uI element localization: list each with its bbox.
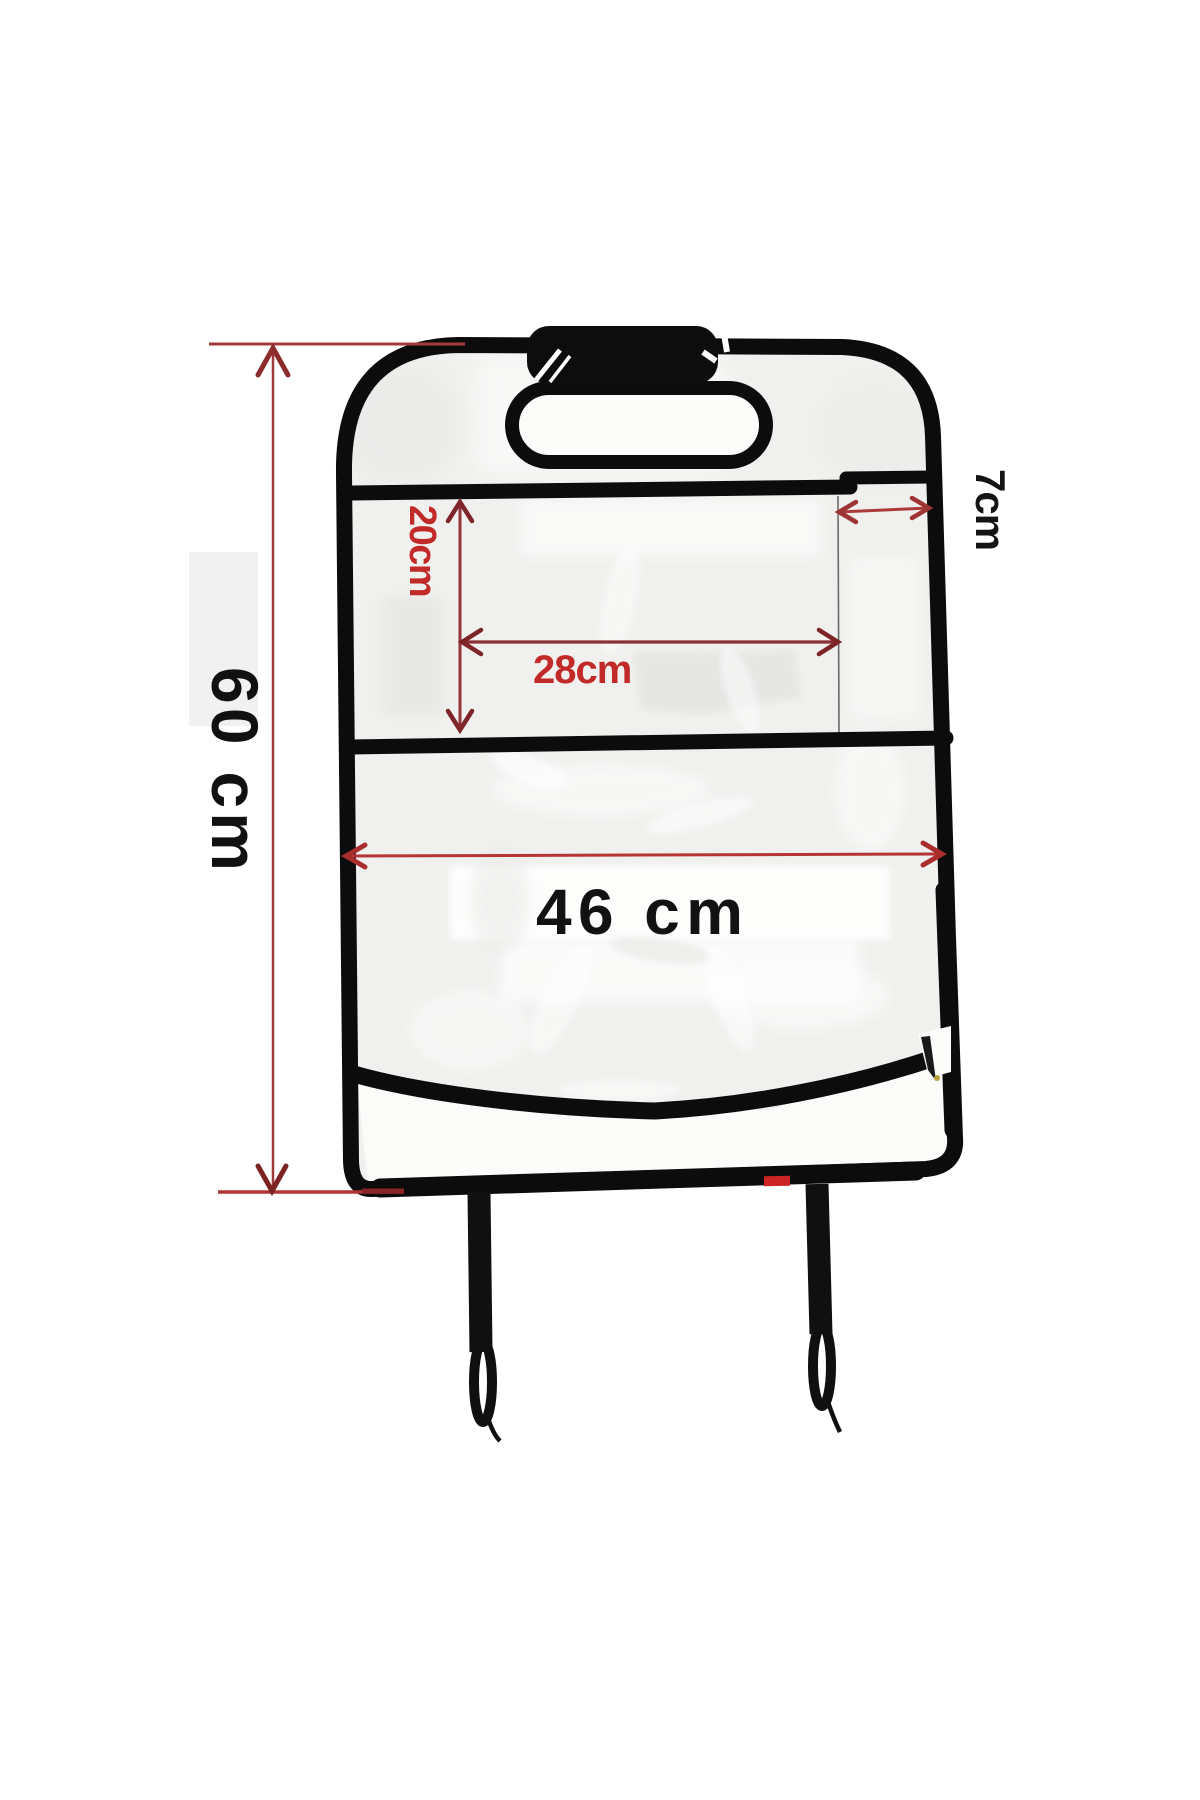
svg-text:28cm: 28cm	[533, 648, 631, 692]
svg-text:60 cm: 60 cm	[198, 667, 272, 875]
svg-text:20cm: 20cm	[401, 505, 443, 596]
svg-text:7cm: 7cm	[967, 469, 1014, 550]
svg-text:46 cm: 46 cm	[536, 876, 749, 948]
